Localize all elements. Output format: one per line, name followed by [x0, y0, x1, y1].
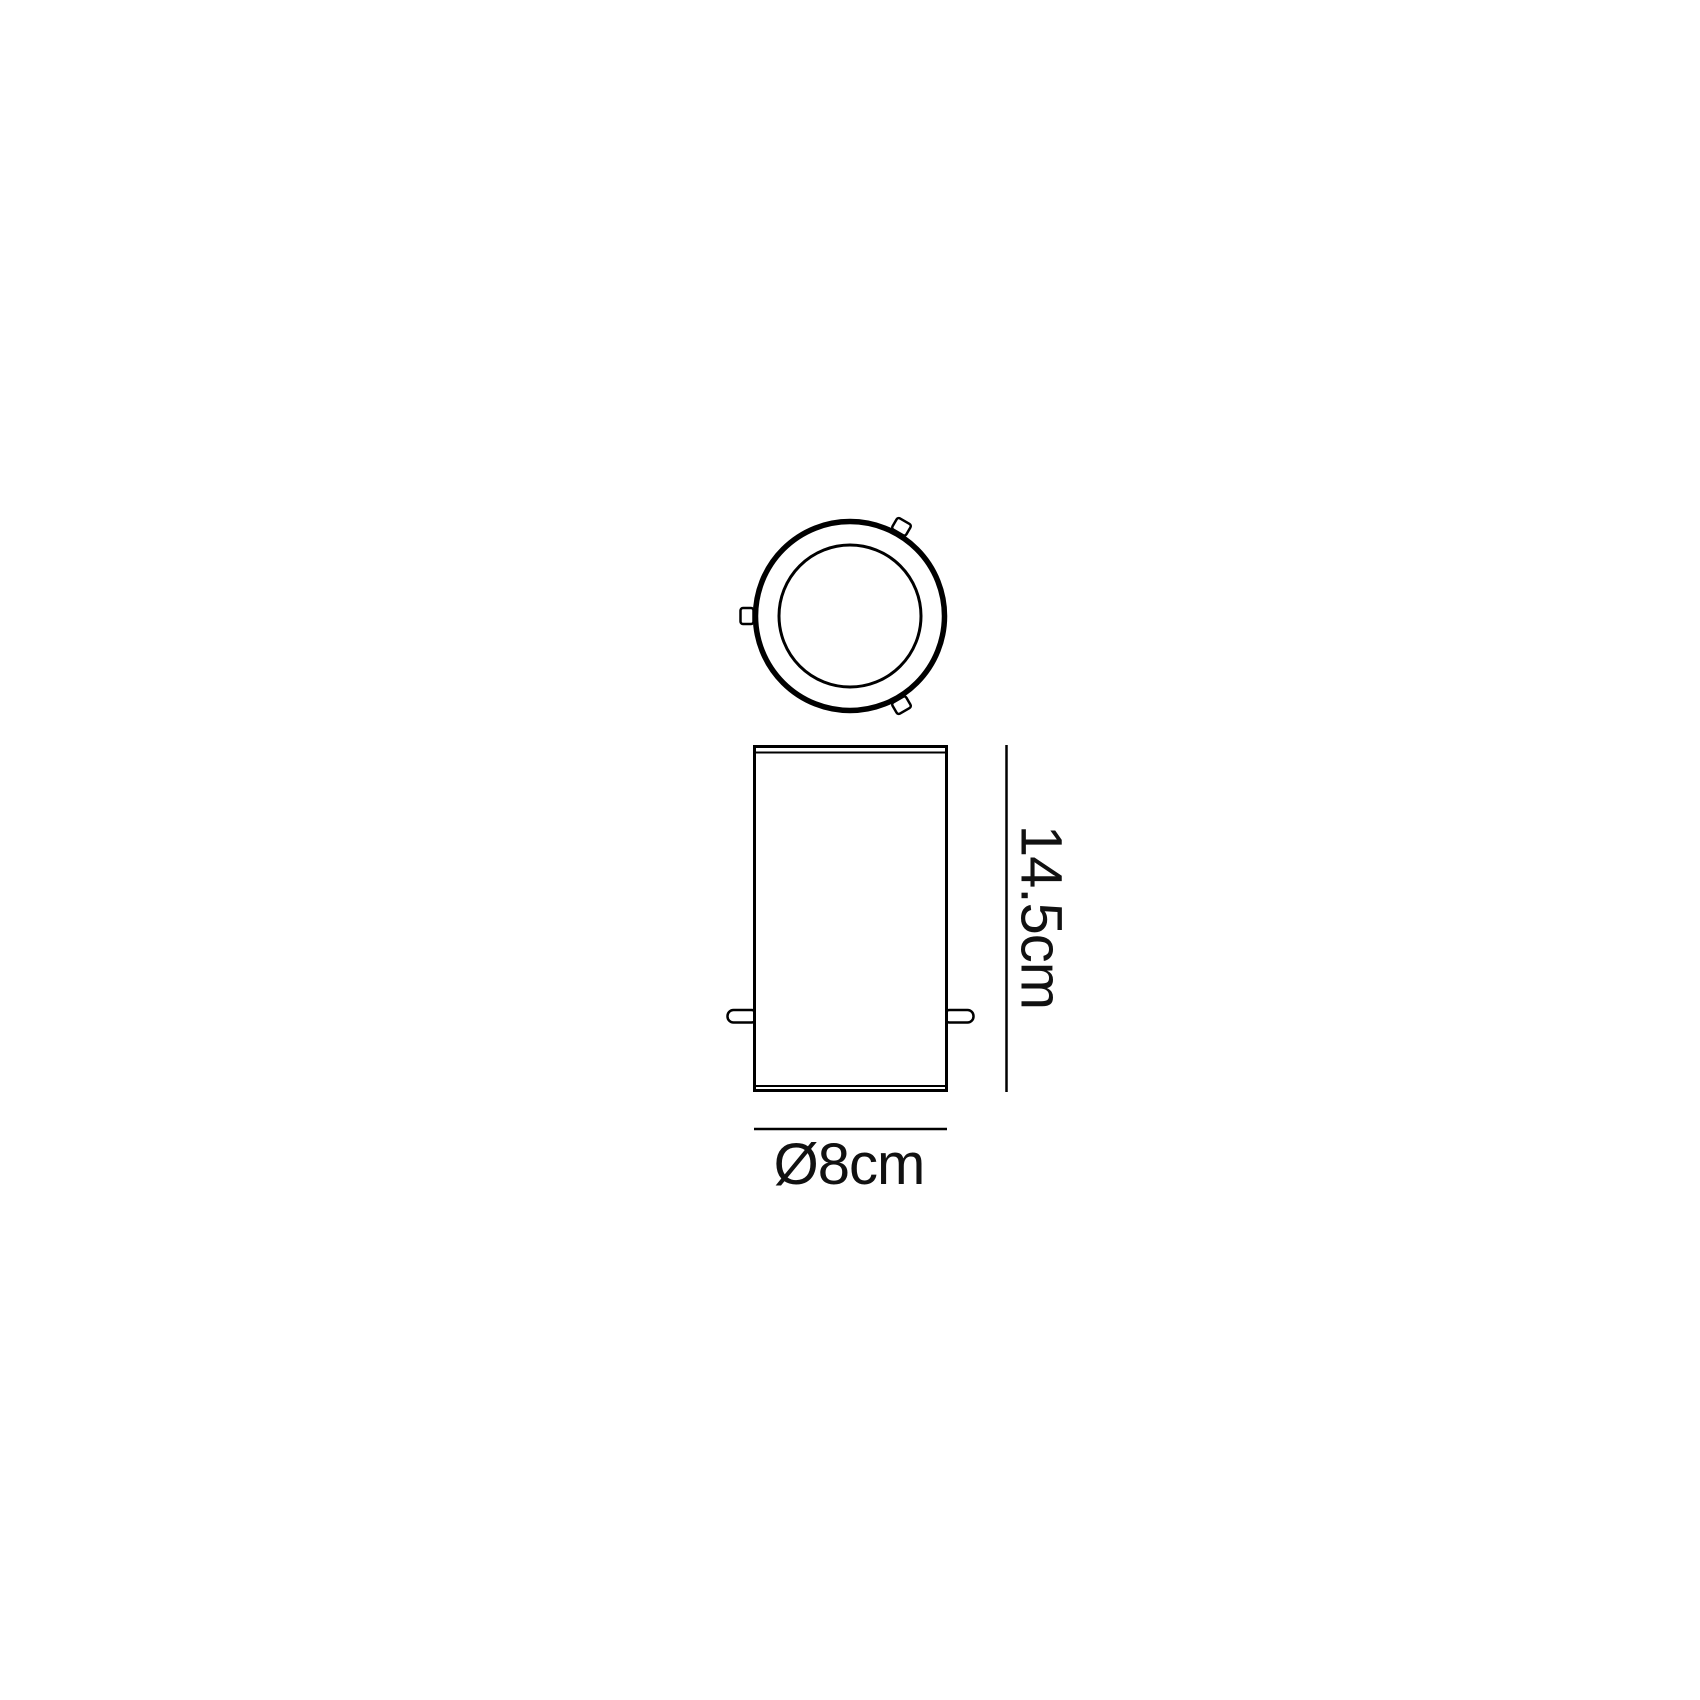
dimension-diagram-svg: 14.5cm Ø8cm — [0, 0, 1700, 1700]
height-dimension-label: 14.5cm — [1009, 825, 1074, 1009]
diameter-dimension-label: Ø8cm — [774, 1132, 925, 1197]
product-dimension-diagram: 14.5cm Ø8cm — [0, 0, 1700, 1700]
inner-diffuser-circle — [779, 545, 921, 687]
mounting-tab-left — [741, 608, 754, 624]
side-view — [728, 747, 974, 1091]
cylinder-body — [755, 747, 947, 1091]
top-view — [741, 517, 945, 715]
